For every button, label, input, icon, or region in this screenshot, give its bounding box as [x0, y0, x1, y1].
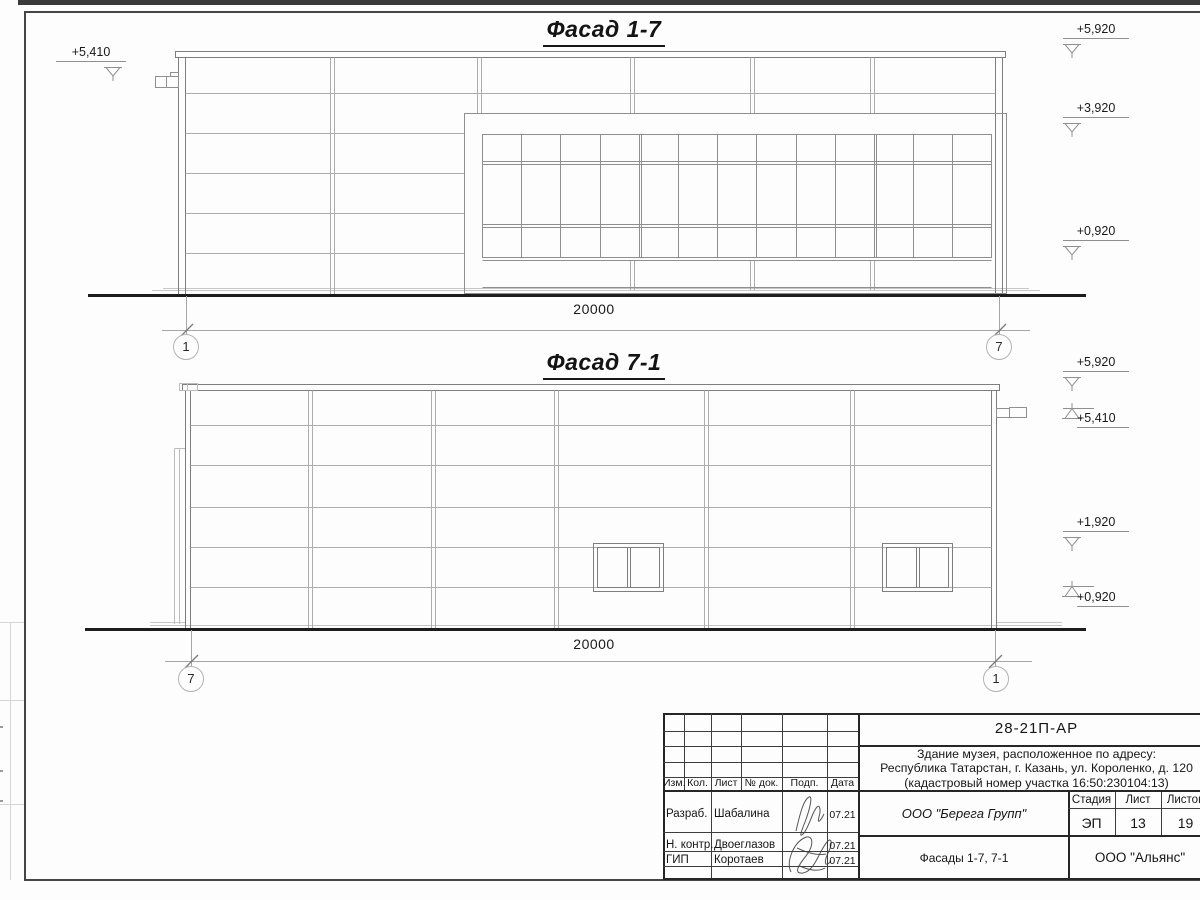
title-block: Изм. Кол. Лист № док. Подп. Дата Разраб.… [663, 713, 1200, 880]
doc-number: 28-21П-АР [860, 720, 1200, 737]
row-role-gip: ГИП [666, 854, 710, 867]
axis-bubble-7-right: 7 [986, 334, 1012, 360]
axis-bubble-1-right: 1 [983, 666, 1009, 692]
elevation-label-0920: +0,920 [1063, 224, 1129, 238]
elevation-label-5410-b: +5,410 [1077, 411, 1129, 425]
glass-curtain-wall [465, 114, 1007, 294]
elevation-label-5920: +5,920 [1063, 22, 1129, 36]
elevation-label-3920: +3,920 [1063, 101, 1129, 115]
facade-1-7-title: Фасад 1-7 [543, 16, 665, 47]
designer-company: ООО "Берега Групп" [860, 792, 1068, 834]
row-date-1: 07.21 [827, 809, 858, 821]
elevation-markers-1-7 [56, 39, 1129, 261]
sheets-label: Листов [1161, 794, 1200, 806]
project-description: Здание музея, расположенное по адресу: Р… [860, 747, 1200, 790]
sheet-number: 13 [1115, 810, 1161, 835]
row-date-3: 07.21 [827, 855, 858, 867]
facade-7-1-linework [85, 384, 1086, 630]
sheets-total: 19 [1161, 810, 1200, 835]
roof-vent-left [156, 73, 179, 88]
stage-value: ЭП [1068, 810, 1115, 835]
facade-7-1-title: Фасад 7-1 [543, 349, 665, 380]
elevation-label-0920-b: +0,920 [1077, 590, 1129, 604]
client-company: ООО "Альянс" [1070, 837, 1200, 878]
col-header-izm: Изм. [663, 777, 684, 789]
facade-1-7-linework [88, 52, 1086, 296]
sheet-label: Лист [1115, 794, 1161, 806]
axis-bubble-1-left: 1 [173, 334, 199, 360]
window-2 [883, 544, 953, 592]
project-description-line2: Республика Татарстан, г. Казань, ул. Кор… [860, 761, 1200, 775]
row-role-nkontr: Н. контр. [666, 839, 716, 852]
axis-bubble-7-left: 7 [178, 666, 204, 692]
facade-1-7-dimension-text: 20000 [554, 301, 634, 317]
col-header-ndok: № док. [741, 777, 782, 789]
elevation-label-5410-left: +5,410 [56, 45, 126, 59]
window-1 [594, 544, 664, 592]
elevation-markers-7-1 [1062, 372, 1129, 607]
stage-label: Стадия [1068, 794, 1115, 806]
roof-vent-right [997, 408, 1027, 418]
col-header-podp: Подп. [782, 777, 827, 789]
facade-7-1-dimension-text: 20000 [554, 636, 634, 652]
elevation-label-1920-b: +1,920 [1063, 515, 1129, 529]
row-name-shabalina: Шабалина [714, 808, 781, 821]
col-header-kol: Кол. [684, 777, 711, 789]
elevation-label-5920-b: +5,920 [1063, 355, 1129, 369]
sheet-title: Фасады 1-7, 7-1 [860, 837, 1068, 878]
row-date-2: 07.21 [827, 840, 858, 852]
project-description-line1: Здание музея, расположенное по адресу: [860, 747, 1200, 761]
row-name-korotaev: Коротаев [714, 854, 781, 867]
col-header-data: Дата [827, 777, 858, 789]
row-name-dvoeglazov: Двоеглазов [714, 839, 781, 852]
col-header-list: Лист [711, 777, 741, 789]
facade-7-1-dimensions [165, 372, 1129, 672]
row-role-razrab: Разраб. [666, 808, 710, 821]
project-description-line3: (кадастровый номер участка 16:50:230104:… [860, 776, 1200, 790]
